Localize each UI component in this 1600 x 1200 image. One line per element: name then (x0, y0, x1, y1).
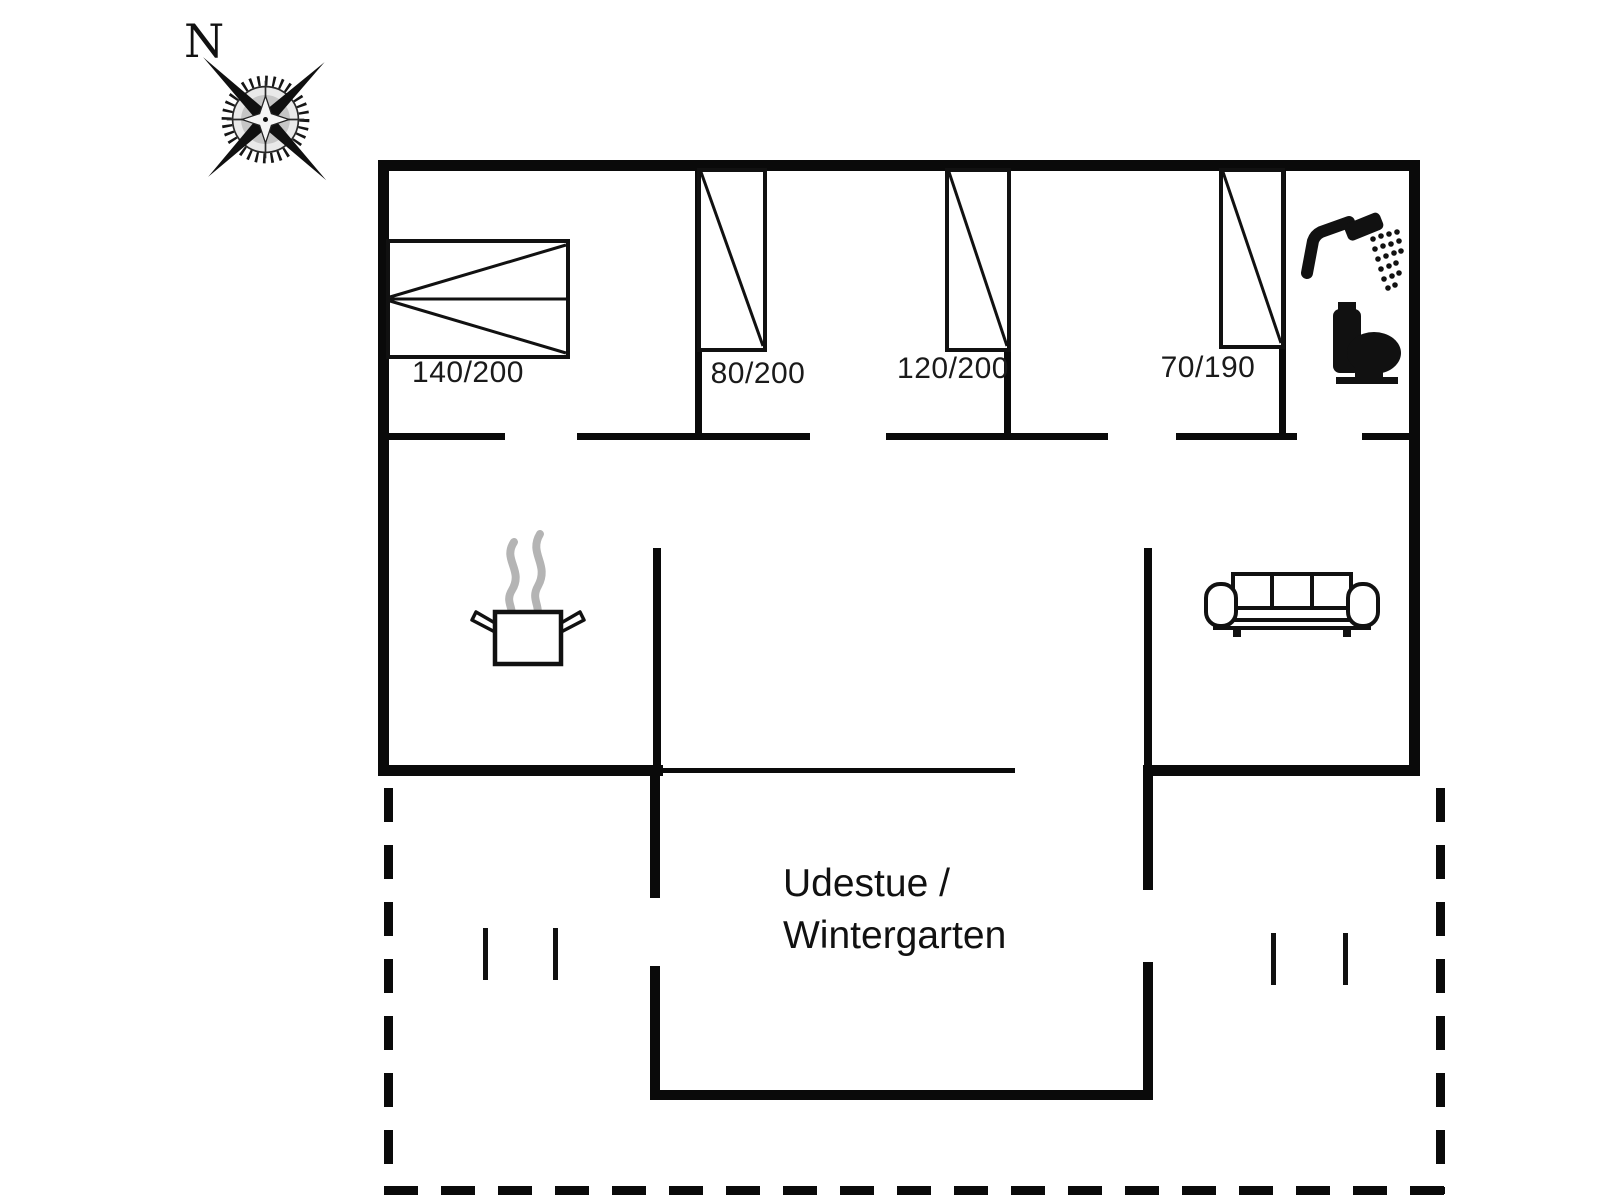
toilet-icon (1325, 300, 1407, 390)
single-bed-80-symbol (697, 168, 767, 352)
single-bed-70-symbol (1219, 168, 1285, 349)
wintergarten-label-line2: Wintergarten (783, 910, 1006, 962)
floor-plan-page: { "compass": { "north_label": "N" }, "be… (0, 0, 1600, 1200)
terrace-post-tick (483, 928, 488, 980)
wintergarten-wall-left-upper (650, 776, 660, 898)
divider-wall-seg-3 (886, 433, 1108, 440)
compass-rose-icon (198, 52, 333, 187)
wintergarten-label-line1: Udestue / (783, 858, 1006, 910)
double-bed-label: 140/200 (378, 356, 558, 390)
double-bed-symbol (386, 239, 570, 359)
divider-wall-seg-1 (384, 433, 505, 440)
outer-wall-right (1409, 160, 1420, 776)
living-room-wall (1144, 548, 1152, 770)
wintergarten-wall-bottom (650, 1090, 1153, 1100)
terrace-post-tick (1343, 933, 1348, 985)
outer-wall-bottom-left (378, 765, 663, 776)
wintergarten-wall-right-lower (1143, 962, 1153, 1100)
window-sill-line (660, 768, 1015, 773)
wintergarten-wall-right-upper (1143, 776, 1153, 890)
terrace-dashed-left (384, 788, 393, 1194)
terrace-dashed-bottom (384, 1186, 1445, 1195)
terrace-post-tick (553, 928, 558, 980)
single-bed-120-label: 120/200 (895, 352, 1011, 386)
cooking-pot-icon (462, 528, 592, 668)
single-bed-120-symbol (945, 168, 1011, 352)
wintergarten-label: Udestue / Wintergarten (783, 858, 1006, 962)
single-bed-70-label: 70/190 (1150, 351, 1266, 385)
divider-wall-seg-2 (577, 433, 810, 440)
sofa-icon (1203, 562, 1381, 642)
terrace-post-tick (1271, 933, 1276, 985)
single-bed-80-label: 80/200 (700, 357, 816, 391)
kitchen-wall (653, 548, 661, 770)
divider-wall-seg-5 (1362, 433, 1414, 440)
terrace-dashed-right (1436, 788, 1445, 1194)
wintergarten-wall-left-lower (650, 966, 660, 1100)
shower-icon (1293, 205, 1408, 310)
outer-wall-bottom-right (1143, 765, 1420, 776)
